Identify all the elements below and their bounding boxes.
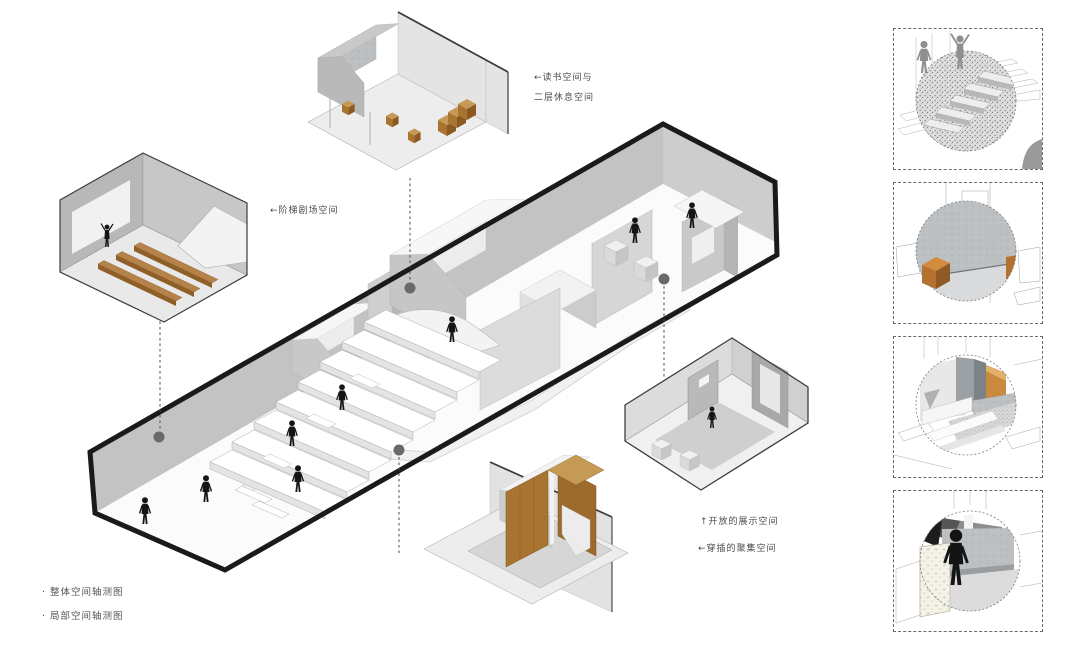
callout-dot bbox=[405, 283, 416, 294]
legend-partial-axonometric: · 局部空间轴测图 bbox=[42, 612, 124, 622]
detail-photo-pebble-wall bbox=[893, 490, 1043, 632]
label-reading-space-line2: 二层休息空间 bbox=[534, 94, 594, 103]
detail-photo-concrete-stool bbox=[893, 182, 1043, 324]
label-open-display: ↑开放的展示空间 bbox=[700, 518, 779, 527]
detail-display-structure bbox=[424, 455, 628, 612]
concrete-wall-wood-stool-closeup bbox=[894, 183, 1042, 323]
corner-silhouette bbox=[1022, 139, 1042, 169]
label-gathering: ←穿插的聚集空间 bbox=[698, 545, 777, 554]
terrazzo-stair-closeup bbox=[894, 29, 1042, 169]
detail-photo-corner-threshold bbox=[893, 336, 1043, 478]
detail-theater-room bbox=[60, 153, 247, 322]
axonometric-illustration bbox=[0, 0, 880, 660]
corner-threshold-closeup bbox=[894, 337, 1042, 477]
legend-overall-axonometric: · 整体空间轴测图 bbox=[42, 588, 124, 598]
pebble-block bbox=[920, 543, 950, 617]
label-stepped-theater: ←阶梯剧场空间 bbox=[270, 207, 339, 216]
callout-dot bbox=[659, 274, 670, 285]
label-reading-space-line1: ←读书空间与 bbox=[534, 74, 593, 83]
detail-gathering-room bbox=[625, 338, 808, 490]
callout-dot bbox=[394, 445, 405, 456]
pebble-wall-figure-closeup bbox=[894, 491, 1042, 631]
detail-reading-room bbox=[308, 12, 508, 170]
detail-photo-terrazzo-stair bbox=[893, 28, 1043, 170]
diagram-page: ←读书空间与 二层休息空间 ←阶梯剧场空间 ↑开放的展示空间 ←穿插的聚集空间 … bbox=[0, 0, 1080, 660]
callout-dot bbox=[154, 432, 165, 443]
